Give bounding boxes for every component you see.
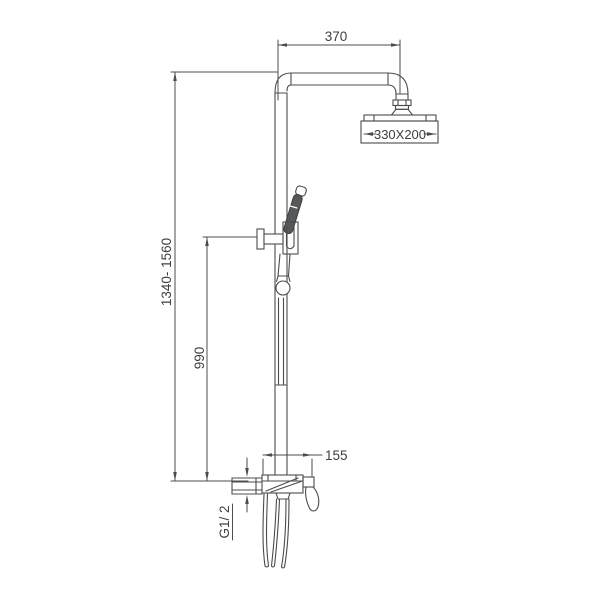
head-size-label: 330X200 (374, 127, 426, 142)
mixer-valve (232, 475, 319, 568)
head-connector-nut (392, 100, 413, 115)
hand-shower-assembly (257, 185, 307, 295)
overall-height-label: 1340- 1560 (159, 238, 174, 306)
mixer-handle (303, 477, 319, 511)
slide-height-label: 990 (192, 347, 207, 370)
ball-joint (276, 281, 290, 295)
dimension-mixer-width: 155 (263, 448, 348, 476)
slider-knob (257, 229, 283, 249)
dimension-slide-height: 990 (192, 237, 258, 481)
mixer-width-label: 155 (325, 448, 348, 463)
inlet-thread-label: G1/ 2 (217, 505, 232, 538)
shower-hose (263, 493, 290, 568)
slider-bracket (283, 222, 298, 254)
overhead-shower: 330X200 (361, 100, 438, 143)
drawing-canvas: 330X200 370 1340- 1560 990 (0, 0, 600, 600)
shower-technical-drawing: 330X200 370 1340- 1560 990 (0, 0, 600, 600)
hand-shower-grip (276, 254, 290, 295)
dimension-head-size: 330X200 (364, 127, 436, 142)
arm-length-label: 370 (325, 29, 348, 44)
dimension-overall-height: 1340- 1560 (159, 72, 277, 481)
dimension-arm-length: 370 (278, 29, 400, 100)
dimension-inlet-thread: G1/ 2 (217, 458, 249, 540)
inlet-pipe (232, 478, 262, 494)
